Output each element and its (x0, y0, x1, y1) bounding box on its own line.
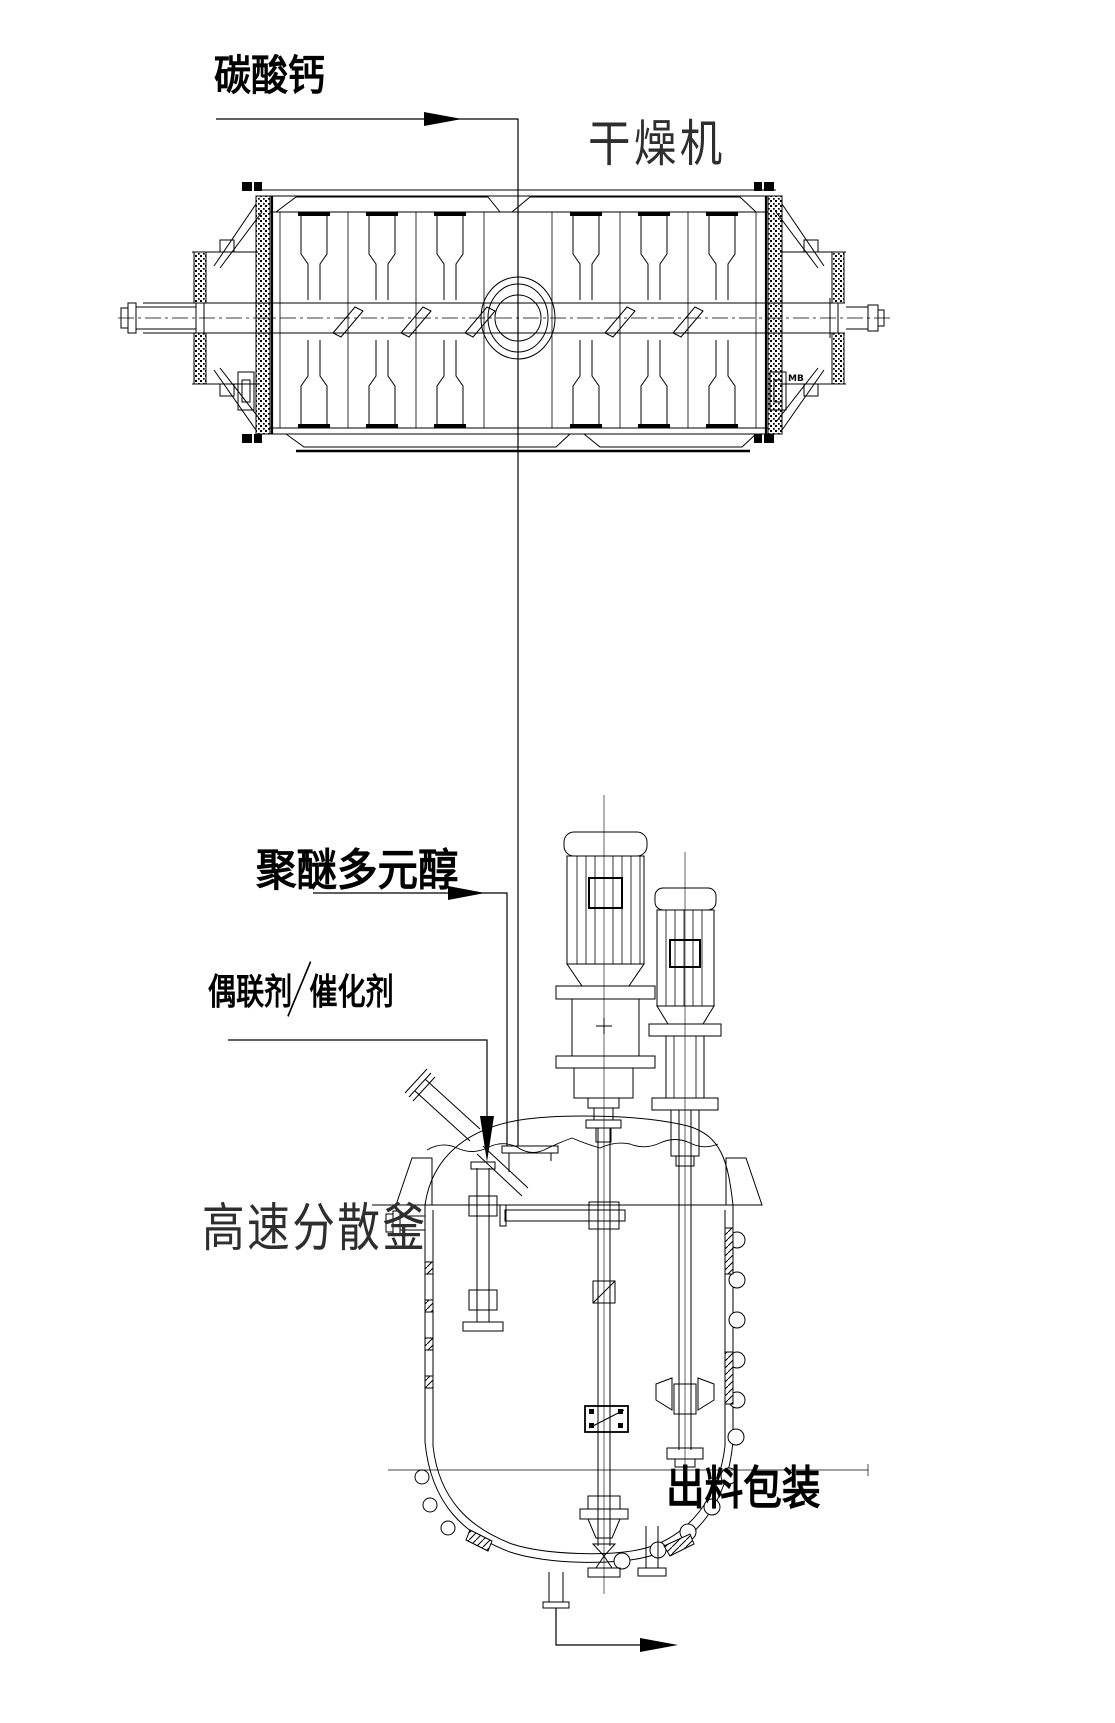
dryer-bearing-left (192, 204, 262, 430)
label-bearing-note: MB (788, 374, 804, 384)
dryer-drawing (118, 182, 892, 451)
process-diagram: 碳酸钙 干燥机 聚醚多元醇 偶联剂 催化剂 高速分散釜 出料包装 MB (0, 0, 1115, 1723)
discharge-line (556, 1608, 678, 1652)
label-dryer: 干燥机 (588, 104, 726, 176)
coupling-agent-line (228, 1040, 494, 1162)
main-motor (556, 832, 655, 1142)
arrow-right-icon (640, 1638, 678, 1652)
support-lug-right (726, 1158, 762, 1205)
label-coupling-agent-catalyst: 偶联剂 催化剂 (208, 958, 394, 1020)
feed-nozzle (502, 1146, 558, 1172)
diagram-linework (0, 0, 1115, 1723)
arrow-right-icon (424, 112, 462, 126)
label-polyether-polyol: 聚醚多元醇 (256, 834, 458, 898)
label-calcium-carbonate: 碳酸钙 (214, 42, 325, 103)
label-discharge-packaging: 出料包装 (666, 1452, 821, 1518)
bolt-studs (242, 182, 774, 443)
arrow-down-icon (480, 1116, 494, 1162)
label-high-speed-dispersion-kettle: 高速分散釜 (202, 1186, 428, 1261)
label-catalyst: 催化剂 (309, 963, 393, 1015)
label-coupling-agent: 偶联剂 (208, 963, 292, 1015)
slanted-nozzle (405, 1069, 528, 1196)
